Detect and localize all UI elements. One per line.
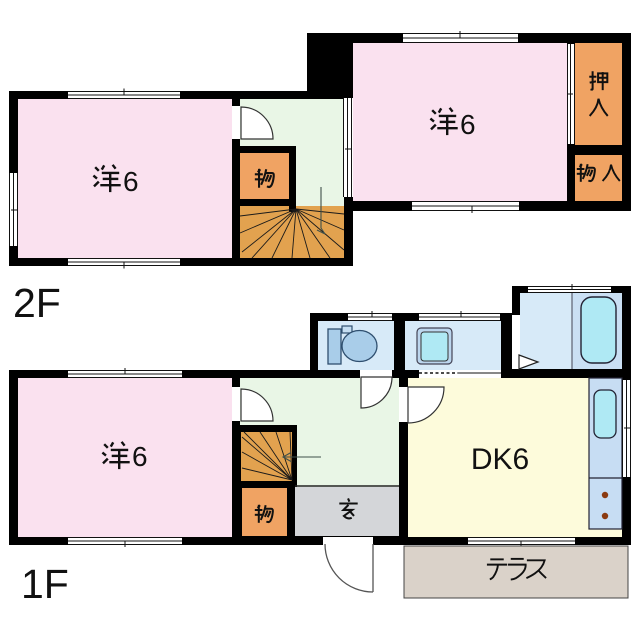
svg-text:2F: 2F	[13, 280, 61, 326]
svg-text:1F: 1F	[21, 561, 69, 607]
svg-text:6: 6	[123, 166, 139, 197]
svg-text:DK6: DK6	[471, 443, 529, 476]
svg-text:6: 6	[132, 441, 148, 472]
svg-text:6: 6	[460, 109, 476, 140]
